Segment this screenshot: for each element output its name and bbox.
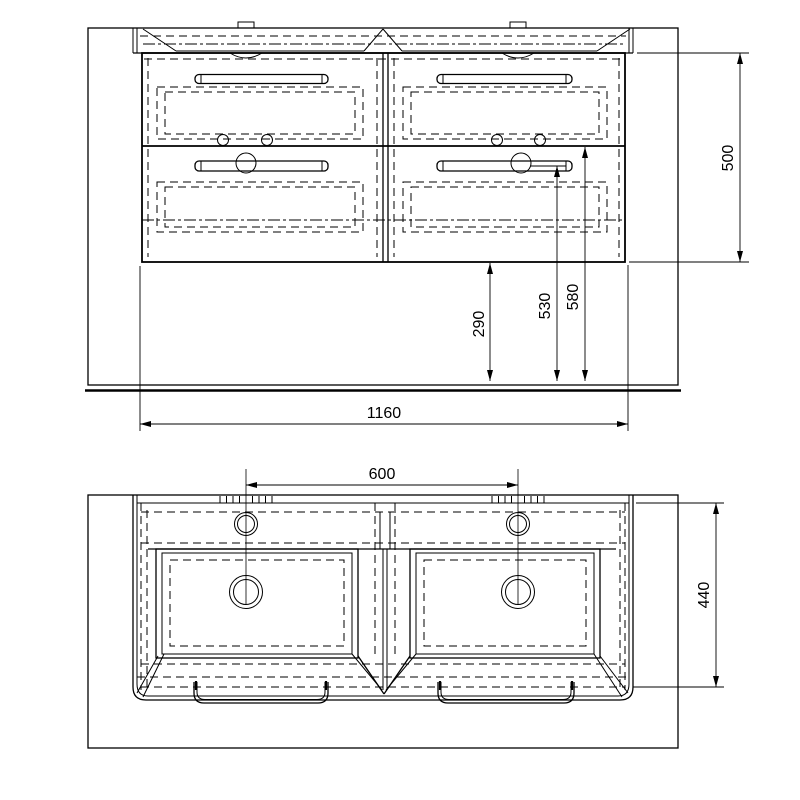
front-view: 500 290 530 580 bbox=[85, 22, 749, 431]
vanity-cabinet bbox=[142, 53, 625, 262]
dim-label-440: 440 bbox=[696, 582, 713, 609]
dim-label-600: 600 bbox=[369, 466, 396, 483]
dim-label-500: 500 bbox=[720, 145, 737, 172]
drain-pipe-hole bbox=[236, 153, 256, 173]
dim-label-1160: 1160 bbox=[367, 405, 402, 422]
basin-right bbox=[410, 549, 600, 658]
dimension-clearance-290: 290 bbox=[471, 263, 493, 381]
basin-left bbox=[156, 549, 358, 658]
drawer-box-hidden bbox=[157, 87, 363, 139]
dim-label-580: 580 bbox=[565, 284, 582, 311]
drawer-box-hidden bbox=[403, 182, 607, 232]
drawer-handle bbox=[437, 75, 572, 84]
drawer-handle bbox=[195, 75, 328, 84]
basin-bowl-outline bbox=[143, 29, 630, 51]
faucet-and-drain-holes bbox=[230, 469, 535, 609]
drawer-box-hidden bbox=[157, 182, 363, 232]
faucet-base-left-front bbox=[238, 22, 254, 28]
drawer-top-right bbox=[403, 75, 607, 140]
dim-label-530: 530 bbox=[537, 293, 554, 320]
supply-hole bbox=[535, 135, 546, 146]
faucet-base-right-front bbox=[510, 22, 526, 28]
technical-drawing-page: 500 290 530 580 bbox=[0, 0, 800, 800]
basin-slope-edges bbox=[137, 512, 628, 697]
technical-drawing-canvas: 500 290 530 580 bbox=[0, 0, 800, 800]
dimension-width-1160: 1160 bbox=[140, 265, 628, 431]
dim-label-290: 290 bbox=[471, 311, 488, 338]
top-view: 600 440 bbox=[88, 466, 724, 748]
drawer-box-hidden bbox=[403, 87, 607, 139]
handle-top-left bbox=[194, 681, 328, 703]
drawer-top-left bbox=[157, 75, 363, 140]
cabinet-center-divider bbox=[383, 53, 388, 262]
dimension-drain-530: 530 bbox=[530, 166, 566, 381]
supply-hole bbox=[218, 135, 229, 146]
plumbing-supply-holes bbox=[218, 135, 546, 146]
supply-hole bbox=[492, 135, 503, 146]
dimension-spacing-600: 600 bbox=[246, 466, 518, 488]
drawer-handle bbox=[195, 161, 328, 171]
handle-top-right bbox=[438, 681, 574, 703]
dimension-height-500: 500 bbox=[629, 53, 749, 262]
drain-pipe-hole bbox=[511, 153, 531, 173]
overflow-slot-ticks bbox=[220, 496, 544, 503]
supply-hole bbox=[262, 135, 273, 146]
